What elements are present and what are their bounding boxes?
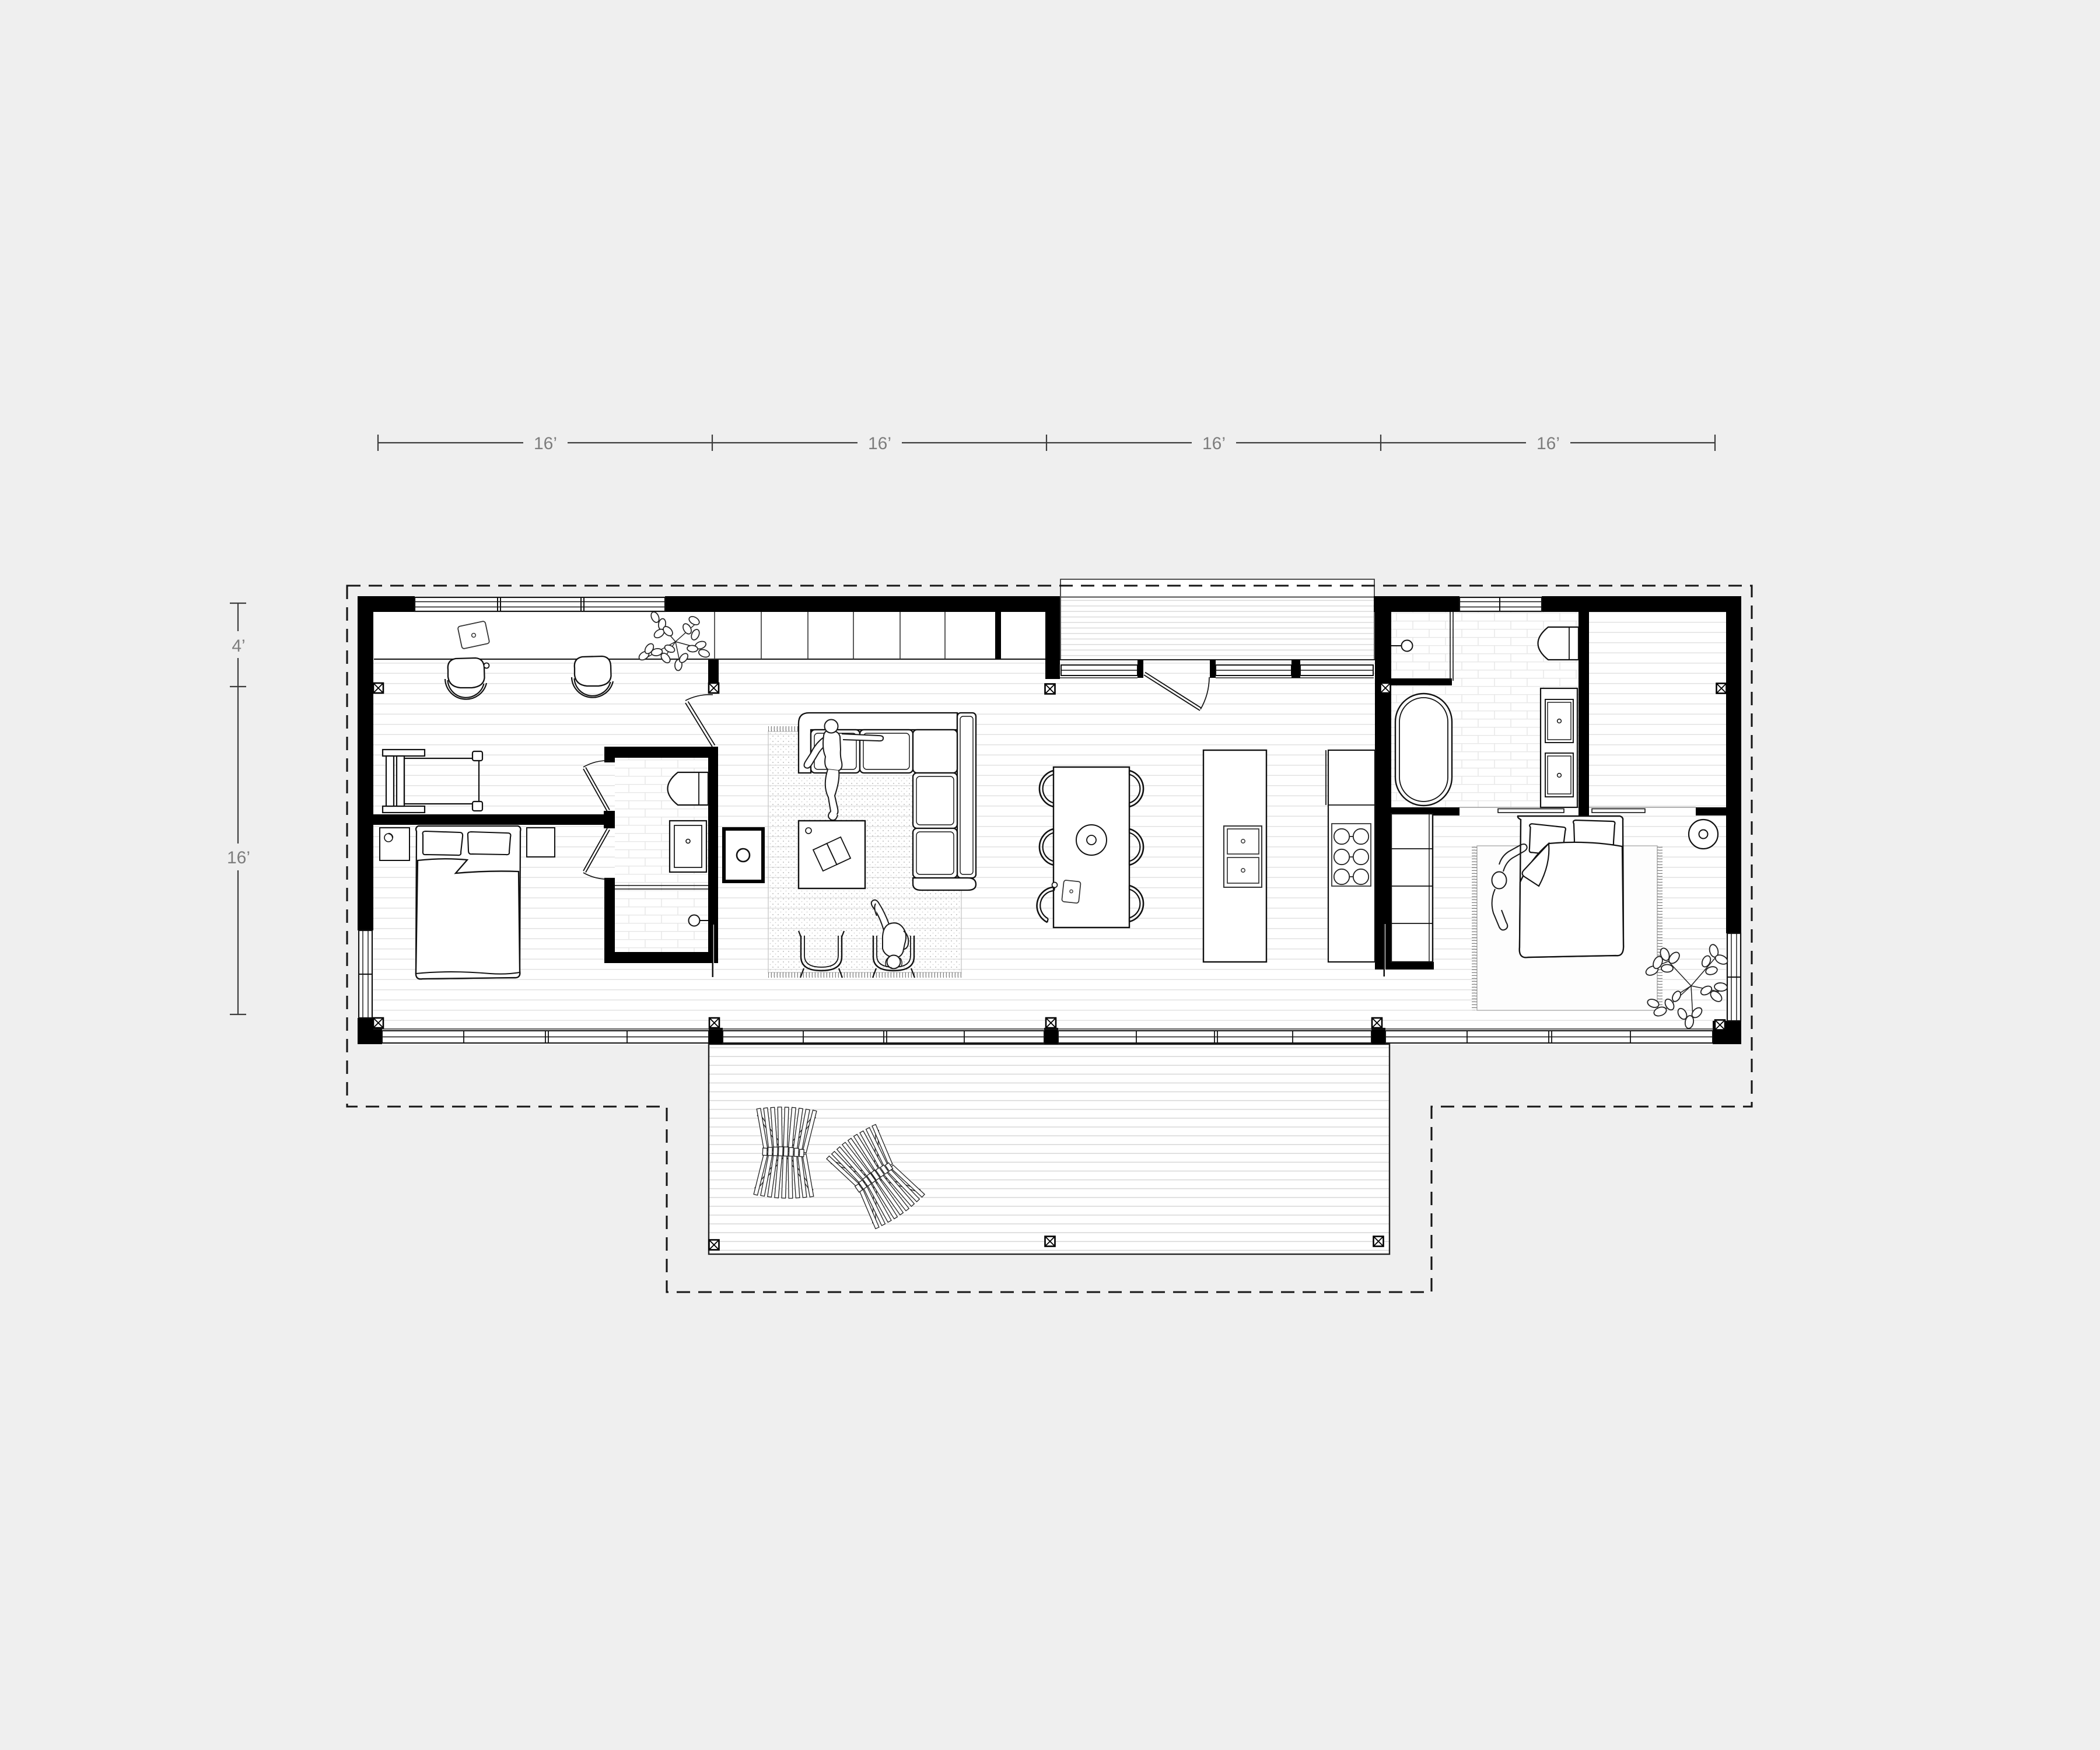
svg-text:4’: 4’: [232, 636, 245, 656]
svg-text:16’: 16’: [1536, 434, 1560, 453]
svg-text:16’: 16’: [1202, 434, 1226, 453]
svg-text:16’: 16’: [534, 434, 557, 453]
svg-text:16’: 16’: [868, 434, 891, 453]
svg-text:16’: 16’: [227, 848, 250, 867]
